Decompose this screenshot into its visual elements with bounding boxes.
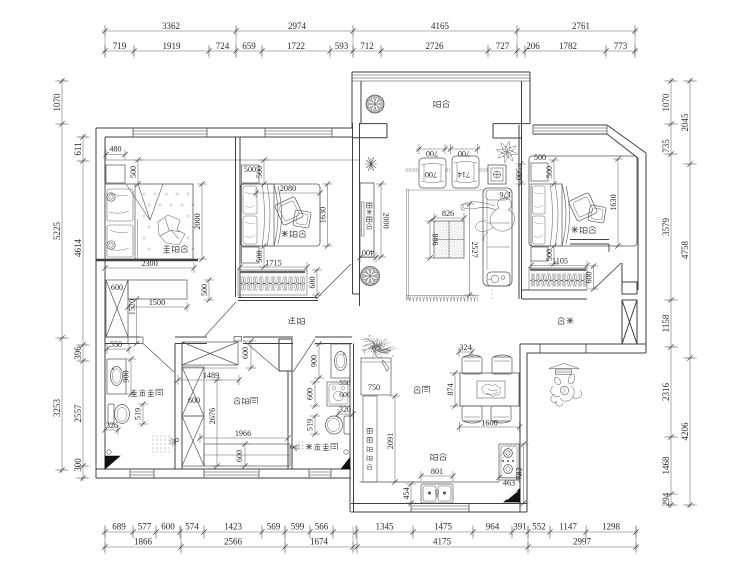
svg-text:600: 600 xyxy=(235,450,244,462)
svg-text:1919: 1919 xyxy=(163,41,182,51)
svg-text:659: 659 xyxy=(242,41,256,51)
svg-text:400: 400 xyxy=(362,248,374,257)
svg-text:2676: 2676 xyxy=(208,408,217,424)
svg-text:500: 500 xyxy=(200,284,209,296)
svg-text:714: 714 xyxy=(458,170,470,179)
svg-text:750: 750 xyxy=(368,383,380,392)
svg-text:2300: 2300 xyxy=(141,259,157,268)
svg-text:176: 176 xyxy=(499,190,511,199)
svg-text:1070: 1070 xyxy=(661,93,671,112)
svg-text:1782: 1782 xyxy=(559,41,577,51)
svg-text:2000: 2000 xyxy=(193,213,202,229)
svg-text:552: 552 xyxy=(532,522,546,532)
svg-text:500: 500 xyxy=(534,153,546,162)
svg-text:4206: 4206 xyxy=(680,422,690,441)
svg-text:600: 600 xyxy=(339,390,351,399)
svg-text:874: 874 xyxy=(446,383,455,395)
svg-text:1489: 1489 xyxy=(203,371,219,380)
svg-text:2997: 2997 xyxy=(573,537,592,547)
svg-text:1147: 1147 xyxy=(559,522,577,532)
svg-text:600: 600 xyxy=(111,283,123,292)
svg-text:727: 727 xyxy=(496,41,510,51)
svg-text:719: 719 xyxy=(113,41,127,51)
svg-text:519: 519 xyxy=(134,408,143,420)
svg-text:2557: 2557 xyxy=(73,404,83,423)
svg-text:1600: 1600 xyxy=(481,419,497,428)
svg-text:500: 500 xyxy=(255,250,264,262)
svg-text:206: 206 xyxy=(526,41,540,51)
svg-text:1866: 1866 xyxy=(134,537,153,547)
svg-text:3362: 3362 xyxy=(162,21,180,31)
svg-text:1674: 1674 xyxy=(310,537,329,547)
svg-text:3253: 3253 xyxy=(52,399,62,418)
svg-text:1630: 1630 xyxy=(319,207,328,223)
svg-text:1475: 1475 xyxy=(434,522,453,532)
svg-text:324: 324 xyxy=(459,343,471,352)
svg-text:801: 801 xyxy=(431,467,443,476)
svg-text:600: 600 xyxy=(308,276,317,288)
svg-text:1105: 1105 xyxy=(552,257,568,266)
svg-text:2080: 2080 xyxy=(280,184,296,193)
svg-text:566: 566 xyxy=(315,522,329,532)
svg-text:1715: 1715 xyxy=(265,259,281,268)
svg-text:593: 593 xyxy=(335,41,349,51)
svg-text:550: 550 xyxy=(110,340,122,349)
svg-text:1520: 1520 xyxy=(128,299,137,315)
svg-text:689: 689 xyxy=(112,522,126,532)
svg-text:600: 600 xyxy=(585,271,594,283)
svg-text:1500: 1500 xyxy=(149,298,165,307)
svg-text:300: 300 xyxy=(73,458,83,472)
svg-text:2000: 2000 xyxy=(382,212,391,228)
svg-text:391: 391 xyxy=(513,522,527,532)
svg-text:1966: 1966 xyxy=(235,429,251,438)
svg-text:294: 294 xyxy=(661,492,671,506)
svg-text:2045: 2045 xyxy=(680,113,690,132)
svg-text:724: 724 xyxy=(216,41,230,51)
svg-text:500: 500 xyxy=(514,168,523,180)
svg-text:1298: 1298 xyxy=(602,522,621,532)
svg-text:1345: 1345 xyxy=(376,522,395,532)
svg-text:500: 500 xyxy=(129,166,138,178)
svg-text:2316: 2316 xyxy=(661,383,671,402)
svg-text:712: 712 xyxy=(360,41,374,51)
svg-text:735: 735 xyxy=(661,139,671,153)
svg-text:1158: 1158 xyxy=(661,314,671,332)
svg-text:326: 326 xyxy=(106,421,118,430)
svg-text:600: 600 xyxy=(188,396,200,405)
svg-text:806: 806 xyxy=(431,233,440,245)
svg-text:1423: 1423 xyxy=(224,522,243,532)
svg-text:611: 611 xyxy=(73,142,83,155)
svg-text:1070: 1070 xyxy=(52,93,62,112)
svg-text:900: 900 xyxy=(310,355,319,367)
svg-text:463: 463 xyxy=(503,479,515,488)
svg-text:826: 826 xyxy=(442,209,454,218)
svg-text:2726: 2726 xyxy=(426,41,445,51)
svg-text:4175: 4175 xyxy=(433,537,452,547)
svg-text:1468: 1468 xyxy=(661,456,671,475)
svg-text:2566: 2566 xyxy=(224,537,243,547)
svg-text:964: 964 xyxy=(486,522,500,532)
svg-text:2761: 2761 xyxy=(572,21,590,31)
svg-text:500: 500 xyxy=(255,166,264,178)
svg-text:773: 773 xyxy=(614,41,628,51)
svg-text:600: 600 xyxy=(306,388,315,400)
svg-text:500: 500 xyxy=(545,166,554,178)
svg-text:4758: 4758 xyxy=(680,241,690,260)
svg-text:3579: 3579 xyxy=(661,218,671,237)
svg-text:320: 320 xyxy=(339,405,351,414)
svg-text:700: 700 xyxy=(425,170,437,179)
svg-text:700: 700 xyxy=(458,149,470,158)
svg-text:599: 599 xyxy=(291,522,305,532)
svg-text:519: 519 xyxy=(306,419,315,431)
svg-text:2091: 2091 xyxy=(386,433,395,449)
svg-text:396: 396 xyxy=(73,346,83,360)
svg-text:4614: 4614 xyxy=(73,239,83,258)
svg-text:577: 577 xyxy=(138,522,152,532)
svg-text:1630: 1630 xyxy=(609,194,618,210)
svg-text:600: 600 xyxy=(161,522,175,532)
svg-text:2527: 2527 xyxy=(470,241,479,257)
svg-text:569: 569 xyxy=(267,522,281,532)
svg-text:574: 574 xyxy=(185,522,199,532)
svg-text:782: 782 xyxy=(515,467,524,479)
svg-text:5225: 5225 xyxy=(52,222,62,241)
svg-text:550: 550 xyxy=(339,378,351,387)
svg-text:4165: 4165 xyxy=(431,21,450,31)
svg-text:454: 454 xyxy=(402,487,411,499)
svg-text:700: 700 xyxy=(426,149,438,158)
svg-text:1722: 1722 xyxy=(287,41,305,51)
svg-text:600: 600 xyxy=(241,347,250,359)
svg-text:2974: 2974 xyxy=(288,21,307,31)
svg-text:480: 480 xyxy=(109,145,121,154)
svg-text:900: 900 xyxy=(122,370,131,382)
